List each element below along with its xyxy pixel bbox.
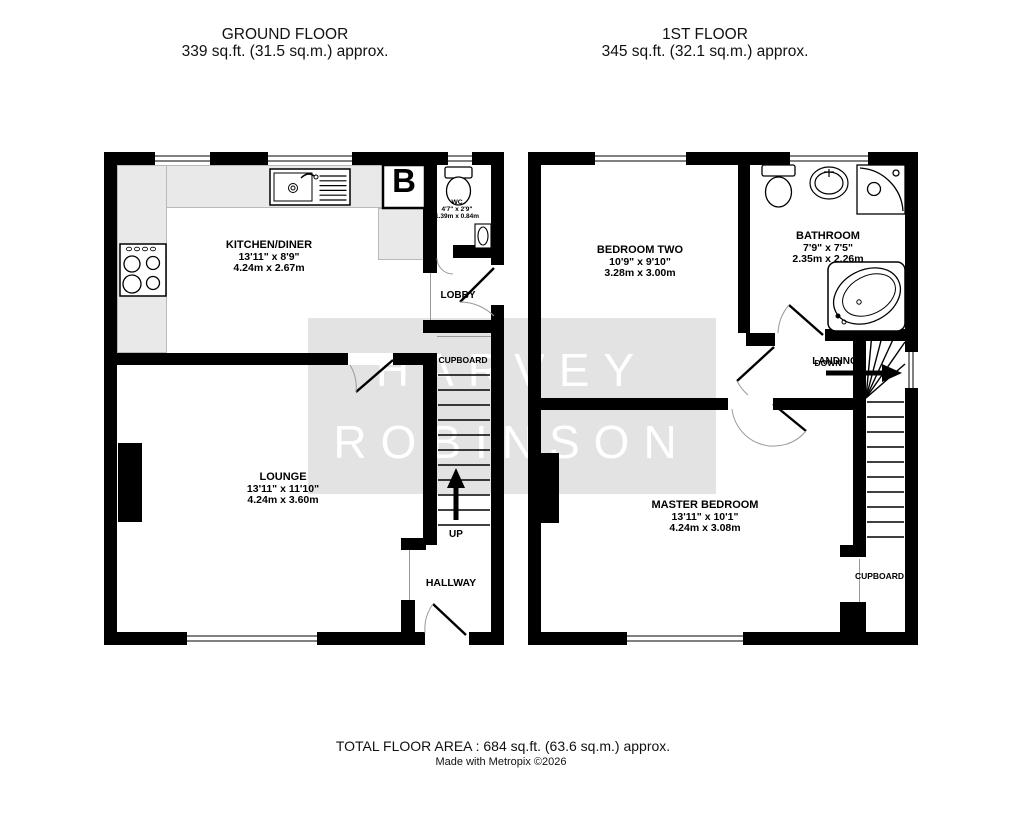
first-cupboard-label: CUPBOARD (854, 571, 905, 581)
bedroom-two-name: BEDROOM TWO (597, 245, 683, 257)
master-bedroom-label: MASTER BEDROOM 13'11" x 10'1" 4.24m x 3.… (652, 500, 759, 535)
master-bedroom-metric: 4.24m x 3.08m (652, 523, 759, 535)
lounge-name: LOUNGE (247, 472, 319, 484)
bedroom-two-metric: 3.28m x 3.00m (597, 268, 683, 280)
ground-cupboard-label: CUPBOARD (437, 355, 489, 365)
master-bedroom-name: MASTER BEDROOM (652, 500, 759, 512)
labels-layer: GROUND FLOOR 339 sq.ft. (31.5 sq.m.) app… (0, 0, 1024, 815)
first-floor-header: 1ST FLOOR 345 sq.ft. (32.1 sq.m.) approx… (602, 26, 809, 60)
kitchen-diner-name: KITCHEN/DINER (226, 240, 312, 252)
total-floor-area: TOTAL FLOOR AREA : 684 sq.ft. (63.6 sq.m… (336, 738, 670, 754)
bathroom-label: BATHROOM 7'9" x 7'5" 2.35m x 2.26m (792, 231, 863, 266)
metropix-credit: Made with Metropix ©2026 (435, 756, 566, 768)
first-floor-title: 1ST FLOOR (602, 26, 809, 43)
lobby-label: LOBBY (441, 290, 476, 301)
hallway-label: HALLWAY (426, 577, 476, 589)
kitchen-diner-metric: 4.24m x 2.67m (226, 263, 312, 275)
wc-label: WC 4'7" x 2'9" 1.39m x 0.84m (435, 199, 479, 221)
bedroom-two-label: BEDROOM TWO 10'9" x 9'10" 3.28m x 3.00m (597, 245, 683, 280)
first-floor-area: 345 sq.ft. (32.1 sq.m.) approx. (602, 43, 809, 60)
ground-floor-area: 339 sq.ft. (31.5 sq.m.) approx. (182, 43, 389, 60)
kitchen-diner-label: KITCHEN/DINER 13'11" x 8'9" 4.24m x 2.67… (226, 240, 312, 275)
floorplan-page: HARVEY ROBINSON (0, 0, 1024, 815)
wc-metric: 1.39m x 0.84m (435, 213, 479, 220)
wc-imperial: 4'7" x 2'9" (435, 206, 479, 213)
ground-floor-header: GROUND FLOOR 339 sq.ft. (31.5 sq.m.) app… (182, 26, 389, 60)
lounge-metric: 4.24m x 3.60m (247, 495, 319, 507)
wc-name: WC (435, 199, 479, 206)
bathroom-metric: 2.35m x 2.26m (792, 254, 863, 266)
ground-floor-title: GROUND FLOOR (182, 26, 389, 43)
lounge-label: LOUNGE 13'11" x 11'10" 4.24m x 3.60m (247, 472, 319, 507)
boiler-label: B (392, 164, 416, 197)
down-label: DOWN (815, 358, 842, 368)
bathroom-name: BATHROOM (792, 231, 863, 243)
up-label: UP (449, 529, 463, 540)
